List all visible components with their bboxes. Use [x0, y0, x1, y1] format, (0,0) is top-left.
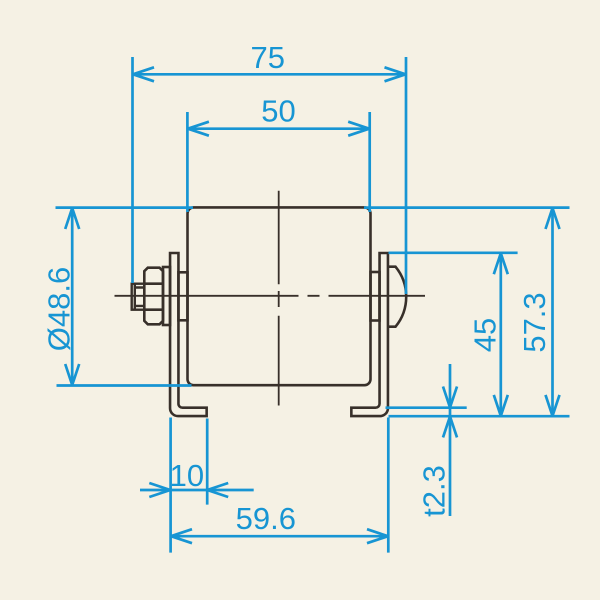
svg-text:45: 45 [468, 318, 503, 352]
svg-text:Ø48.6: Ø48.6 [42, 267, 77, 351]
svg-text:57.3: 57.3 [517, 292, 552, 352]
svg-text:75: 75 [250, 40, 284, 75]
svg-text:50: 50 [261, 94, 295, 129]
svg-text:t2.3: t2.3 [417, 465, 452, 517]
svg-text:10: 10 [170, 458, 204, 493]
svg-text:59.6: 59.6 [236, 501, 296, 536]
